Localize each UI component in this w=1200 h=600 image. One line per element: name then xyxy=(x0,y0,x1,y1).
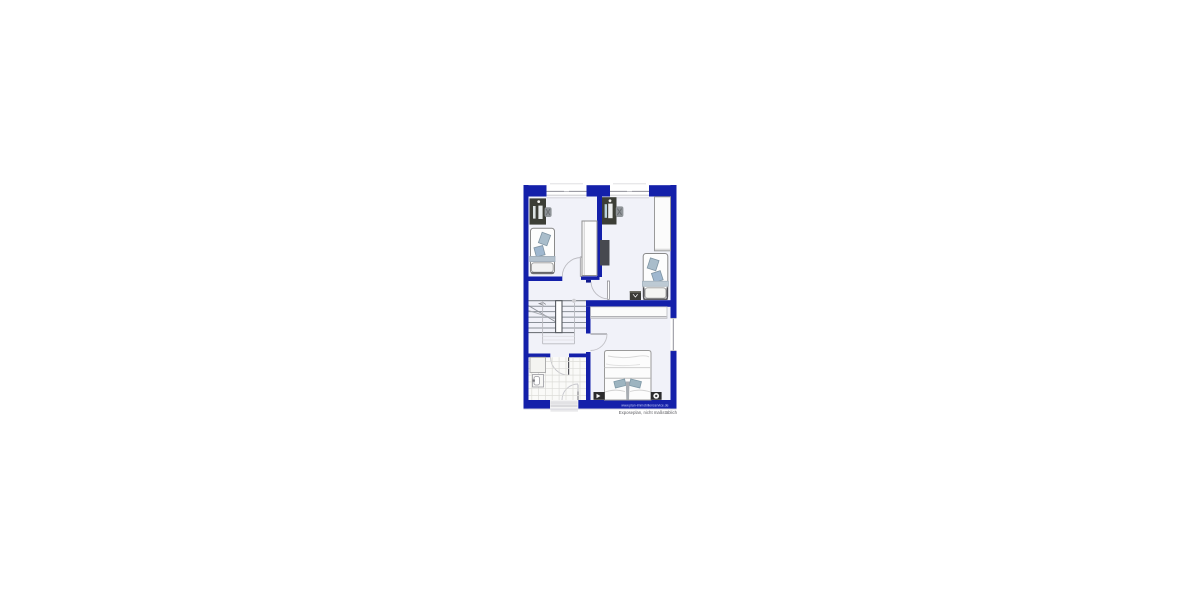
svg-text:Exposeplan, nicht maßstäblich: Exposeplan, nicht maßstäblich xyxy=(619,410,678,415)
svg-text:www.plan-immobilienservice.de: www.plan-immobilienservice.de xyxy=(621,403,668,407)
